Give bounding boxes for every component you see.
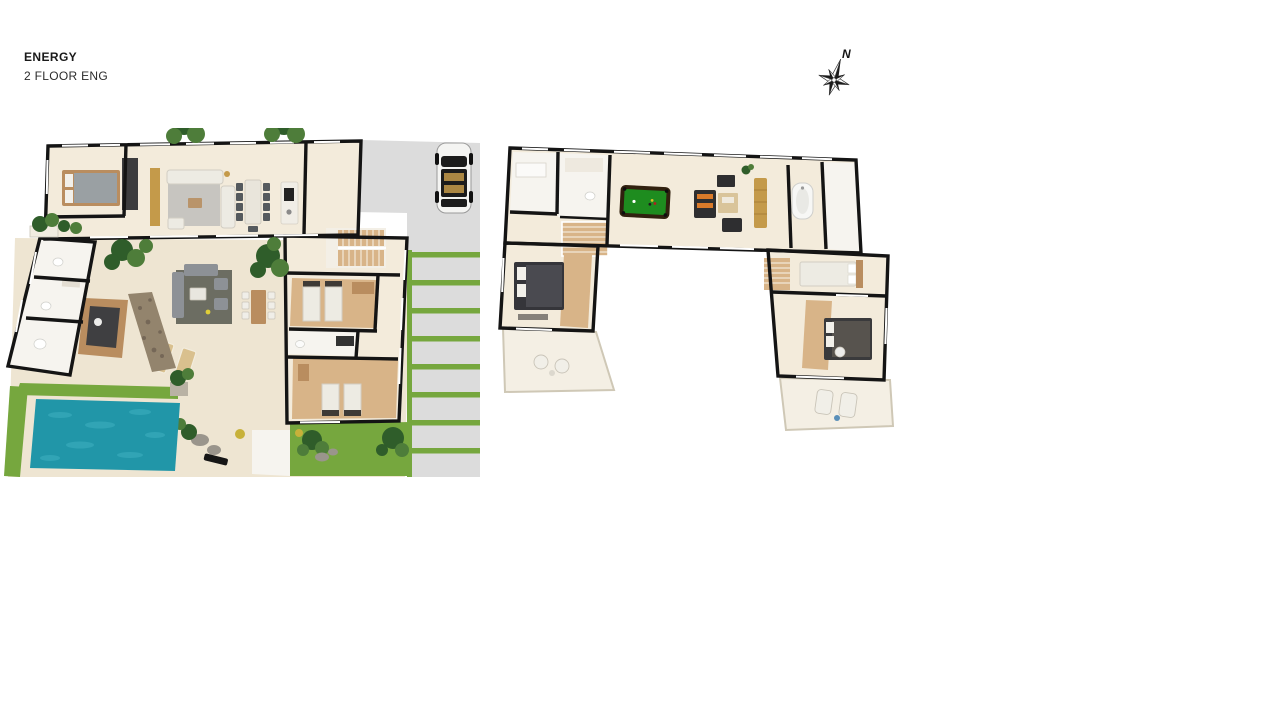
laundry-counter — [516, 163, 546, 177]
outdoor-chair — [214, 298, 228, 310]
outdoor-lounge — [172, 264, 232, 324]
sink — [286, 209, 291, 214]
bed-bench — [518, 314, 548, 320]
armchair — [168, 218, 184, 229]
terrace-right — [780, 378, 893, 430]
outdoor-sofa — [184, 264, 218, 276]
outdoor-sofa — [172, 272, 184, 318]
car-wheel — [469, 191, 473, 203]
car-wheel — [435, 153, 439, 165]
billiard-table — [619, 185, 671, 220]
kitchen — [281, 182, 298, 224]
twin-bed — [325, 287, 342, 321]
outdoor-chair — [214, 278, 228, 290]
twin-bed — [322, 384, 339, 414]
car-windshield — [441, 156, 467, 167]
lounge-chair — [722, 218, 742, 232]
gold-bench — [754, 178, 767, 228]
round-chair — [534, 355, 548, 369]
side-table — [549, 370, 555, 376]
tv-sideboard — [150, 168, 160, 226]
bed-duvet — [526, 265, 562, 307]
page-subtitle: 2 FLOOR ENG — [24, 69, 108, 83]
dresser — [352, 282, 374, 294]
sheet-header: ENERGY 2 FLOOR ENG — [24, 50, 108, 83]
compass-north-label: N — [842, 47, 851, 61]
page-title: ENERGY — [24, 50, 108, 64]
second-floor-plan — [498, 133, 900, 435]
bed-pillow — [65, 190, 73, 203]
cooktop — [284, 188, 294, 201]
garden-step — [252, 430, 290, 476]
bed-blanket — [74, 173, 117, 203]
car — [435, 143, 473, 213]
coffee-table — [188, 198, 202, 208]
pouf — [835, 347, 845, 357]
staircase-upper — [562, 222, 608, 256]
lounger — [838, 392, 857, 418]
sofa — [167, 170, 223, 184]
outdoor-table — [251, 290, 266, 324]
car-wheel — [469, 153, 473, 165]
lounger — [814, 389, 833, 415]
sofa — [221, 186, 235, 228]
bathroom-tub — [792, 183, 813, 219]
car-wheel — [435, 191, 439, 203]
side-cabinet — [717, 175, 735, 187]
toilet — [585, 192, 595, 200]
floor-plan-sheet: ENERGY 2 FLOOR ENG — [0, 0, 1280, 720]
outdoor-dining — [242, 290, 275, 324]
coffee-table — [190, 288, 206, 300]
ground-floor-plan — [0, 128, 500, 490]
twin-bed — [344, 384, 361, 414]
round-chair — [555, 359, 569, 373]
laundry-floor — [510, 152, 558, 214]
compass-rose: N — [808, 42, 864, 106]
wood-floor — [560, 254, 592, 328]
vanity — [336, 336, 354, 346]
dining-table — [245, 180, 261, 224]
bed-pillow — [65, 174, 73, 187]
bedroom-upper-right — [800, 260, 863, 288]
bed — [800, 262, 856, 286]
dresser — [298, 364, 309, 381]
bbq-countertop — [86, 306, 120, 348]
headboard — [856, 260, 863, 288]
tree — [166, 128, 205, 144]
twin-bed — [303, 287, 320, 321]
side-table — [834, 415, 840, 421]
car-rear-window — [441, 199, 467, 207]
shower — [565, 158, 603, 172]
toilet — [296, 341, 305, 348]
